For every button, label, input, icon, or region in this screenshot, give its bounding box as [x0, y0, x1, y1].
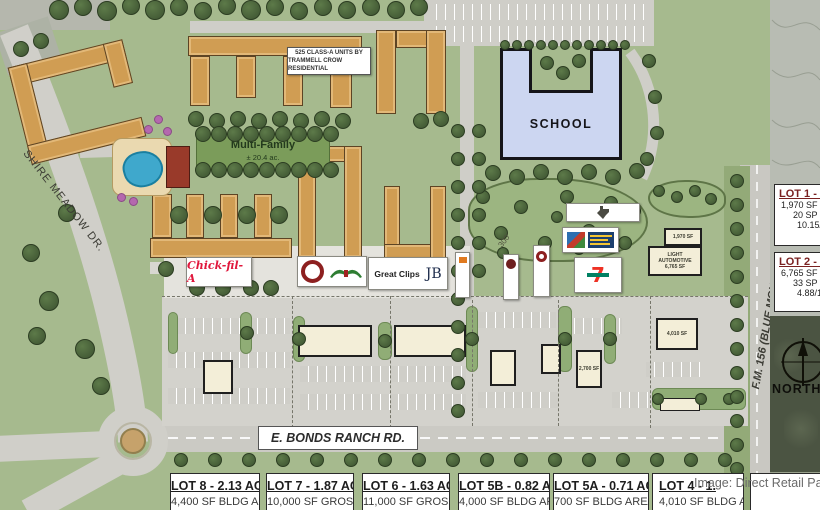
- image-credit: Image: Direct Retail Pa: [694, 476, 820, 490]
- tree: [241, 0, 261, 20]
- tree: [548, 453, 562, 467]
- tree: [560, 190, 574, 204]
- lot-6-label: LOT 6 - 1.63 AC.11,000 SF GROSS: [362, 473, 450, 510]
- tree: [560, 40, 570, 50]
- tree: [259, 162, 275, 178]
- sign-logo-icon: [506, 259, 516, 269]
- tree: [170, 206, 188, 224]
- tree: [572, 40, 582, 50]
- flowering-tree: [129, 197, 138, 206]
- flowering-tree: [154, 115, 163, 124]
- tree: [338, 1, 356, 19]
- pool: [119, 146, 167, 191]
- tree: [97, 1, 117, 21]
- tree: [195, 126, 211, 142]
- tree: [13, 41, 29, 57]
- tree: [291, 126, 307, 142]
- tree: [446, 453, 460, 467]
- tree: [323, 126, 339, 142]
- tree: [730, 174, 744, 188]
- school-label: SCHOOL: [503, 117, 619, 131]
- tree: [433, 111, 449, 127]
- retail-pad-2700: 2,700 SF: [576, 350, 602, 388]
- lot-2-label: LOT 2 - 0. 6,765 SF BL 33 SP P 4.88/1: [774, 252, 820, 312]
- tree: [194, 2, 212, 20]
- tree: [344, 453, 358, 467]
- tree: [243, 162, 259, 178]
- tree: [540, 56, 554, 70]
- tree: [472, 124, 486, 138]
- monument-sign-1: [455, 252, 470, 298]
- tree: [28, 327, 46, 345]
- tree: [689, 185, 701, 197]
- tree: [413, 113, 429, 129]
- light-automotive-building: LIGHT AUTOMOTIVE 6,765 SF: [648, 246, 702, 276]
- wingstop-sign: [297, 256, 367, 287]
- tree: [465, 332, 479, 346]
- tree: [650, 126, 664, 140]
- tree: [270, 206, 288, 224]
- tree: [730, 342, 744, 356]
- parking-island: [168, 312, 178, 354]
- tree: [472, 152, 486, 166]
- great-clips-sign: Great Clips JB: [368, 257, 448, 290]
- tree: [451, 376, 465, 390]
- retail-pad-small-3: [203, 360, 233, 394]
- tree: [276, 453, 290, 467]
- monument-sign-2: [503, 254, 519, 300]
- tree: [451, 124, 465, 138]
- tree: [291, 162, 307, 178]
- tree: [472, 208, 486, 222]
- tree: [509, 169, 525, 185]
- monument-sign-3: [533, 245, 550, 297]
- tree: [472, 236, 486, 250]
- quick-pad-building: 1,970 SF: [664, 228, 702, 246]
- tree: [378, 334, 392, 348]
- tree: [92, 377, 110, 395]
- tree: [648, 90, 662, 104]
- tree: [556, 66, 570, 80]
- tree: [310, 453, 324, 467]
- tree: [195, 162, 211, 178]
- lot-5b-label: LOT 5B - 0.82 AC.4,000 SF BLDG AREA: [458, 473, 550, 510]
- lot-line: [472, 300, 473, 426]
- tree: [618, 236, 632, 250]
- tree: [485, 165, 501, 181]
- contour-lines: [770, 0, 820, 180]
- lot-5a-label: LOT 5A - 0.71 AC.700 SF BLDG AREA: [553, 473, 649, 510]
- pool-deck: [112, 138, 172, 196]
- parking-stripes: [478, 392, 558, 408]
- tree: [652, 393, 664, 405]
- texas-shape-sign: [566, 203, 640, 222]
- retail-pad-a: [298, 325, 372, 357]
- tree: [451, 180, 465, 194]
- lot-line: [390, 296, 391, 428]
- parking-stripes: [300, 366, 466, 382]
- street-label-bonds-ranch: E. BONDS RANCH RD.: [258, 426, 418, 450]
- tree: [145, 0, 165, 20]
- tree: [730, 198, 744, 212]
- lot-8-label: LOT 8 - 2.13 AC.4,400 SF BLDG AREA: [170, 473, 260, 510]
- seven-eleven-sign: 7: [574, 257, 622, 293]
- tree: [227, 162, 243, 178]
- tree: [536, 40, 546, 50]
- lot-line: [558, 300, 559, 426]
- tree: [307, 126, 323, 142]
- tree: [730, 366, 744, 380]
- tree: [642, 54, 656, 68]
- residential-note: 525 CLASS-A UNITS BY TRAMMELL CROW RESID…: [287, 47, 371, 75]
- north-label: NORTH: [772, 382, 820, 396]
- chick-fil-a-sign: Chick-fil-A: [186, 257, 252, 287]
- tree: [730, 294, 744, 308]
- tree: [451, 152, 465, 166]
- tree: [275, 126, 291, 142]
- tree: [620, 40, 630, 50]
- lot-line: [292, 296, 293, 428]
- tree: [551, 211, 563, 223]
- flowering-tree: [117, 193, 126, 202]
- tree: [730, 318, 744, 332]
- tree: [242, 453, 256, 467]
- tree: [584, 40, 594, 50]
- tree: [514, 200, 528, 214]
- tree: [512, 40, 522, 50]
- tree: [272, 111, 288, 127]
- lot-1-label: LOT 1 - 0. 1,970 SF BL 20 SP P 10.15/1: [774, 184, 820, 246]
- clubhouse: [166, 146, 190, 188]
- tree: [323, 162, 339, 178]
- tree: [582, 453, 596, 467]
- tree: [174, 453, 188, 467]
- tree: [49, 0, 69, 20]
- tree: [259, 126, 275, 142]
- flowering-tree: [144, 125, 153, 134]
- tree: [514, 453, 528, 467]
- sign-logo-icon: [536, 251, 547, 262]
- future-pad-box: [660, 398, 700, 411]
- tree: [290, 2, 308, 20]
- retail-pad-4010: 4,010 SF: [656, 318, 698, 350]
- parking-stripes: [478, 312, 556, 328]
- tree: [451, 348, 465, 362]
- tree: [211, 162, 227, 178]
- sign-logo-icon: [459, 257, 467, 263]
- tree: [230, 111, 246, 127]
- car-wash-sign: [562, 227, 619, 253]
- parking-stripes: [168, 318, 290, 334]
- tree: [650, 453, 664, 467]
- texas-icon: [596, 206, 610, 219]
- tree: [292, 332, 306, 346]
- tree: [730, 390, 744, 404]
- tree: [204, 206, 222, 224]
- aerial-dark-block: NORTH: [770, 316, 820, 472]
- tree: [451, 404, 465, 418]
- tree: [558, 332, 572, 346]
- tree: [730, 222, 744, 236]
- tree: [451, 236, 465, 250]
- tree: [533, 164, 549, 180]
- tree: [524, 40, 534, 50]
- tree: [730, 246, 744, 260]
- tree: [451, 320, 465, 334]
- tree: [500, 40, 510, 50]
- lot-line: [650, 296, 651, 428]
- tree: [653, 185, 665, 197]
- tree: [608, 40, 618, 50]
- wingstop-wings-icon: [329, 264, 363, 280]
- car-wash-logo-icon: [567, 232, 585, 248]
- tree: [718, 453, 732, 467]
- tree: [307, 162, 323, 178]
- flowering-tree: [163, 127, 172, 136]
- lot-7-label: LOT 7 - 1.87 AC.10,000 SF GROSS: [266, 473, 354, 510]
- school-building: SCHOOL: [500, 48, 622, 160]
- tree: [275, 162, 291, 178]
- tree: [603, 332, 617, 346]
- tree: [158, 261, 174, 277]
- wingstop-circle-icon: [301, 260, 324, 283]
- parking-stripes: [428, 4, 650, 20]
- tree: [548, 40, 558, 50]
- tree: [412, 453, 426, 467]
- retail-pad-small-1: [490, 350, 516, 386]
- tree: [387, 1, 405, 19]
- tree: [211, 126, 227, 142]
- tree: [208, 453, 222, 467]
- tree: [75, 339, 95, 359]
- tree: [705, 193, 717, 205]
- tree: [472, 180, 486, 194]
- tree: [572, 54, 586, 68]
- tree: [240, 326, 254, 340]
- tree: [263, 280, 279, 296]
- tree: [596, 40, 606, 50]
- parking-stripes: [300, 394, 466, 410]
- tree: [605, 169, 621, 185]
- tree: [684, 453, 698, 467]
- tree: [472, 264, 486, 278]
- jb-monogram: JB: [426, 266, 442, 282]
- tree: [671, 191, 683, 203]
- tree: [730, 270, 744, 284]
- tree: [188, 111, 204, 127]
- tree: [335, 113, 351, 129]
- tree: [227, 126, 243, 142]
- tree: [22, 244, 40, 262]
- tree: [39, 291, 59, 311]
- site-plan: SCHOOL Multi-: [0, 0, 820, 510]
- tree: [238, 206, 256, 224]
- tree: [378, 453, 392, 467]
- tree: [695, 393, 707, 405]
- tree: [730, 414, 744, 428]
- seven-eleven-green-bar: [587, 273, 609, 277]
- tree: [33, 33, 49, 49]
- tree: [616, 453, 630, 467]
- tree: [629, 163, 645, 179]
- tree: [480, 453, 494, 467]
- tree: [243, 126, 259, 142]
- parking-stripes: [646, 362, 700, 377]
- tree: [640, 152, 654, 166]
- tree: [451, 208, 465, 222]
- tree: [581, 164, 597, 180]
- tree: [314, 111, 330, 127]
- tree: [730, 438, 744, 452]
- tree: [557, 169, 573, 185]
